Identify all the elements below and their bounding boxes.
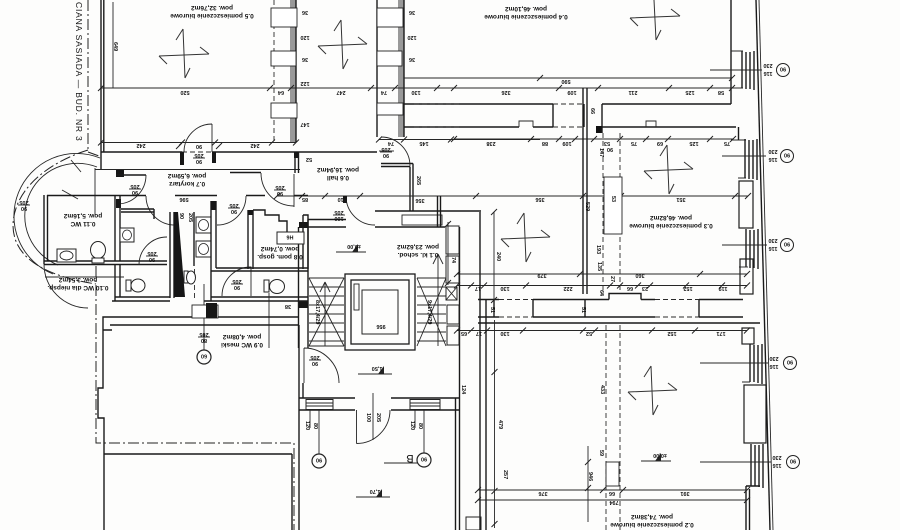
svg-text:119: 119	[719, 285, 728, 291]
svg-text:230: 230	[768, 148, 777, 154]
svg-text:74: 74	[387, 140, 394, 146]
svg-text:CIANA SASIADA — BUD. NR 3: CIANA SASIADA — BUD. NR 3	[74, 2, 84, 142]
svg-text:H6: H6	[286, 234, 293, 240]
svg-text:649: 649	[112, 42, 118, 51]
svg-text:116: 116	[769, 245, 778, 251]
svg-text:520: 520	[180, 89, 189, 95]
svg-text:205: 205	[19, 199, 28, 205]
svg-text:64: 64	[277, 89, 284, 95]
svg-text:65: 65	[461, 330, 467, 336]
svg-text:205: 205	[275, 184, 284, 190]
svg-text:240: 240	[495, 252, 501, 261]
svg-text:433: 433	[599, 385, 605, 394]
svg-text:66: 66	[589, 108, 595, 114]
svg-text:36: 36	[302, 9, 308, 15]
svg-text:66: 66	[609, 490, 615, 496]
svg-text:147: 147	[598, 148, 604, 157]
svg-text:36: 36	[302, 56, 308, 62]
svg-text:230: 230	[768, 237, 777, 243]
svg-text:64: 64	[598, 290, 604, 297]
svg-text:152: 152	[667, 330, 676, 336]
svg-text:257: 257	[502, 470, 508, 479]
svg-text:479: 479	[497, 420, 503, 429]
svg-text:171: 171	[716, 330, 725, 336]
svg-text:205: 205	[310, 354, 319, 360]
svg-text:360: 360	[635, 272, 644, 278]
svg-text:pow. 46,10m2: pow. 46,10m2	[505, 5, 547, 12]
svg-text:85: 85	[302, 196, 308, 202]
svg-text:pow. 3,54m2: pow. 3,54m2	[58, 276, 97, 283]
svg-text:0.3 pomieszczenie biurowe: 0.3 pomieszczenie biurowe	[629, 222, 713, 229]
svg-text:205: 205	[187, 213, 193, 222]
svg-text:9x17,4/29: 9x17,4/29	[426, 300, 432, 324]
svg-text:205: 205	[199, 331, 208, 337]
svg-text:90: 90	[784, 241, 790, 247]
svg-text:52: 52	[586, 330, 592, 336]
svg-text:0.8 pom. gosp.: 0.8 pom. gosp.	[257, 253, 303, 260]
svg-text:88: 88	[542, 140, 548, 146]
svg-text:230: 230	[763, 62, 772, 68]
svg-text:100: 100	[365, 413, 371, 422]
svg-text:80: 80	[312, 423, 318, 429]
svg-text:391: 391	[680, 490, 689, 496]
svg-text:0.4 pomieszczenie biurowe: 0.4 pomieszczenie biurowe	[484, 13, 568, 20]
svg-text:222: 222	[563, 285, 572, 291]
svg-text:pow. 16,94m2: pow. 16,94m2	[317, 166, 359, 173]
svg-text:130: 130	[411, 89, 420, 95]
svg-text:B: B	[406, 452, 413, 464]
svg-text:80: 80	[417, 423, 423, 429]
svg-text:265: 265	[415, 176, 421, 185]
svg-text:125: 125	[689, 140, 698, 146]
svg-text:90: 90	[607, 146, 613, 152]
svg-text:75: 75	[724, 140, 730, 146]
svg-text:379: 379	[537, 272, 546, 278]
svg-text:211: 211	[629, 89, 638, 95]
svg-text:pow. 5,16m2: pow. 5,16m2	[63, 212, 102, 219]
svg-text:pow. 0,74m2: pow. 0,74m2	[260, 245, 299, 252]
svg-text:529: 529	[584, 202, 590, 211]
svg-text:±0,00: ±0,00	[347, 243, 361, 249]
svg-text:147: 147	[300, 121, 309, 127]
svg-text:596: 596	[179, 196, 188, 202]
svg-text:90: 90	[421, 456, 427, 462]
svg-text:116: 116	[769, 156, 778, 162]
svg-text:120: 120	[304, 421, 310, 430]
svg-text:90: 90	[790, 458, 796, 464]
svg-text:74: 74	[450, 257, 456, 264]
svg-text:75: 75	[631, 140, 637, 146]
svg-text:51: 51	[489, 307, 495, 313]
svg-text:116: 116	[770, 363, 779, 369]
svg-text:38: 38	[285, 303, 291, 309]
svg-text:120: 120	[407, 34, 416, 40]
svg-text:pow. 4,08m2: pow. 4,08m2	[222, 333, 261, 340]
svg-text:205: 205	[229, 202, 238, 208]
svg-text:109: 109	[562, 140, 571, 146]
svg-text:205: 205	[194, 152, 203, 158]
svg-text:193: 193	[595, 245, 601, 254]
svg-text:-1,70: -1,70	[370, 488, 383, 494]
svg-text:0.6 hall: 0.6 hall	[327, 174, 349, 181]
svg-text:130: 130	[500, 285, 509, 291]
svg-text:0.5 pomieszczenie biurowe: 0.5 pomieszczenie biurowe	[170, 12, 254, 19]
svg-text:52: 52	[306, 156, 312, 162]
svg-text:247: 247	[336, 89, 345, 95]
svg-text:0.11 WC: 0.11 WC	[70, 220, 95, 227]
svg-text:pow. 6,59m2: pow. 6,59m2	[167, 172, 206, 179]
svg-text:205: 205	[375, 413, 381, 422]
svg-text:122: 122	[300, 80, 309, 86]
svg-text:23: 23	[642, 285, 648, 291]
svg-text:0.1 kl. schod.: 0.1 kl. schod.	[397, 251, 438, 258]
svg-text:53: 53	[610, 196, 616, 202]
svg-text:59: 59	[598, 450, 604, 456]
svg-text:356: 356	[415, 197, 424, 203]
svg-text:pow. 74,38m2: pow. 74,38m2	[631, 513, 673, 520]
svg-text:956: 956	[376, 323, 385, 329]
svg-text:36: 36	[409, 56, 415, 62]
svg-text:130: 130	[500, 330, 509, 336]
svg-text:356: 356	[535, 196, 544, 202]
svg-text:17: 17	[476, 330, 482, 336]
svg-text:205: 205	[334, 209, 343, 215]
svg-text:238: 238	[486, 140, 495, 146]
svg-text:90: 90	[196, 143, 202, 149]
svg-text:pow. 23,62m2: pow. 23,62m2	[397, 243, 439, 250]
svg-text:pow. 46,82m2: pow. 46,82m2	[650, 214, 692, 221]
svg-text:60: 60	[201, 353, 207, 359]
svg-text:0.2 pomieszczenie biurowe: 0.2 pomieszczenie biurowe	[610, 521, 694, 528]
svg-text:242: 242	[136, 142, 145, 148]
svg-text:135: 135	[596, 262, 602, 271]
svg-text:0.10 WC dla niepsp.: 0.10 WC dla niepsp.	[47, 284, 108, 291]
svg-text:69: 69	[657, 140, 663, 146]
svg-text:90: 90	[178, 213, 184, 219]
svg-text:124: 124	[460, 385, 466, 395]
svg-text:351: 351	[676, 196, 685, 202]
svg-text:794: 794	[608, 499, 618, 505]
svg-text:590: 590	[561, 78, 570, 84]
svg-text:±0,00: ±0,00	[653, 452, 667, 458]
svg-text:90: 90	[787, 359, 793, 365]
svg-text:152: 152	[683, 285, 692, 291]
svg-text:376: 376	[538, 490, 547, 496]
svg-text:36: 36	[409, 9, 415, 15]
svg-text:205: 205	[130, 183, 139, 189]
svg-text:116: 116	[773, 462, 782, 468]
svg-text:0.7 korytarz: 0.7 korytarz	[168, 180, 205, 187]
svg-text:205: 205	[232, 278, 241, 284]
svg-text:125: 125	[685, 89, 694, 95]
svg-text:8x17,4/29: 8x17,4/29	[314, 300, 320, 324]
svg-text:230: 230	[769, 355, 778, 361]
svg-text:242: 242	[250, 142, 259, 148]
svg-text:120: 120	[300, 34, 309, 40]
svg-text:58: 58	[718, 89, 724, 95]
svg-text:109: 109	[567, 89, 576, 95]
svg-text:90: 90	[784, 152, 790, 158]
svg-text:0.9 WC meski: 0.9 WC meski	[221, 341, 263, 348]
svg-text:230: 230	[772, 454, 781, 460]
svg-text:66: 66	[627, 285, 633, 291]
svg-text:27: 27	[609, 276, 615, 282]
svg-text:205: 205	[147, 250, 156, 256]
svg-text:90: 90	[780, 66, 786, 72]
svg-text:53: 53	[604, 140, 610, 146]
svg-text:90: 90	[316, 457, 322, 463]
svg-text:74: 74	[380, 89, 387, 95]
svg-text:145: 145	[419, 140, 428, 146]
svg-text:pow. 32,76m2: pow. 32,76m2	[191, 4, 233, 11]
svg-text:-1,50: -1,50	[372, 365, 385, 371]
svg-text:116: 116	[764, 70, 773, 76]
svg-text:326: 326	[501, 89, 510, 95]
svg-text:120: 120	[409, 421, 415, 430]
svg-text:51: 51	[580, 307, 586, 313]
